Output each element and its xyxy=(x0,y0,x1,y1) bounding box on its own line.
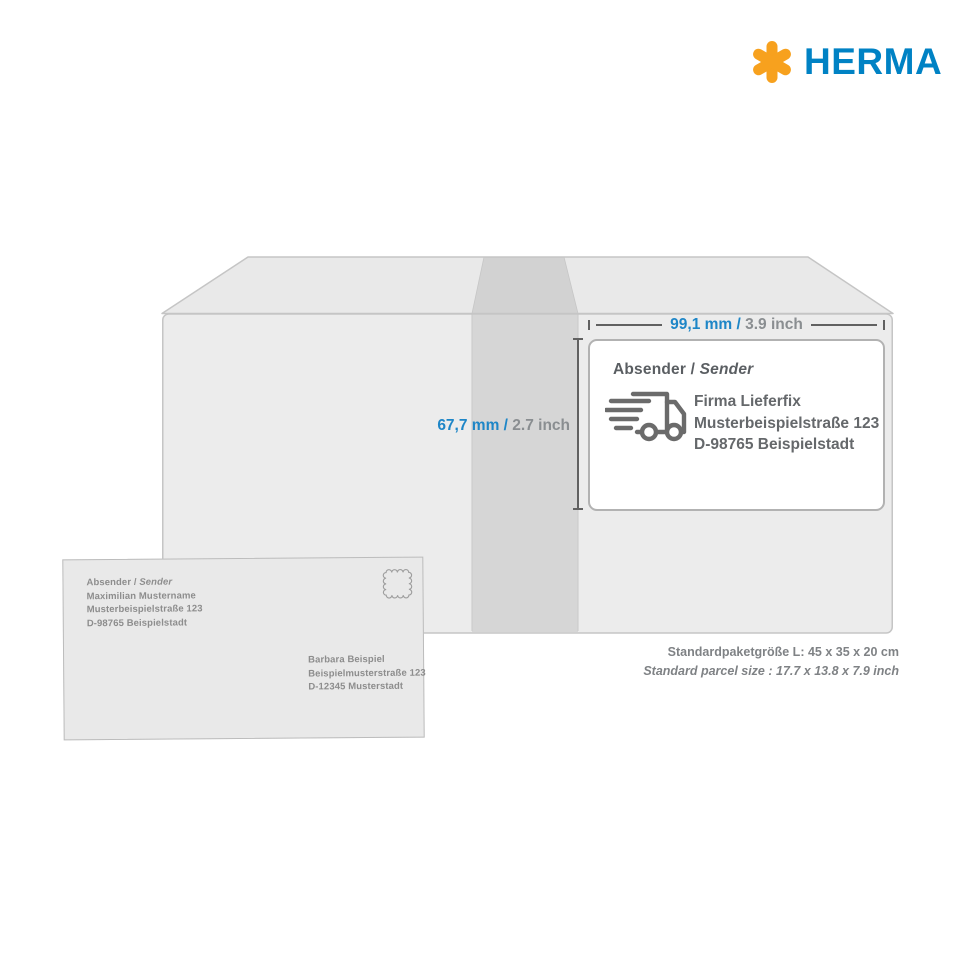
width-metric: 99,1 mm / xyxy=(670,316,741,333)
envelope-recipient-line: D-12345 Musterstadt xyxy=(308,680,426,694)
address-line: D-98765 Beispielstadt xyxy=(694,434,879,456)
width-imperial: 3.9 inch xyxy=(745,316,803,333)
envelope-sender-heading-de: Absender / xyxy=(86,577,136,588)
envelope: Absender / Sender Maximilian Mustername … xyxy=(62,557,424,741)
envelope-sender-heading-en: Sender xyxy=(139,577,172,588)
label-heading-en: Sender xyxy=(700,361,754,378)
width-dimension: 99,1 mm / 3.9 inch xyxy=(588,318,885,332)
dimension-line xyxy=(596,324,662,326)
dimension-tick xyxy=(883,320,885,330)
address-line: Musterbeispielstraße 123 xyxy=(694,413,879,435)
label-heading: Absender / Sender xyxy=(613,361,753,379)
shipping-label: Absender / Sender Firma Lieferfix Muster… xyxy=(588,339,885,511)
height-dimension-text: 67,7 mm / 2.7 inch xyxy=(400,417,570,435)
parcel-size-caption: Standardpaketgröße L: 45 x 35 x 20 cm St… xyxy=(643,643,899,680)
width-dimension-text: 99,1 mm / 3.9 inch xyxy=(668,316,805,334)
caption-imperial: Standard parcel size : 17.7 x 13.8 x 7.9… xyxy=(643,662,899,681)
height-dimension-line xyxy=(577,338,579,510)
herma-wordmark: HERMA xyxy=(804,40,942,84)
envelope-sender-line: Musterbeispielstraße 123 xyxy=(87,602,203,616)
dimension-tick xyxy=(573,338,583,340)
dimension-tick xyxy=(588,320,590,330)
height-metric: 67,7 mm / xyxy=(437,417,508,434)
height-imperial: 2.7 inch xyxy=(512,417,570,434)
envelope-recipient-line: Beispielmusterstraße 123 xyxy=(308,666,426,680)
herma-asterisk-icon xyxy=(750,40,794,84)
delivery-truck-icon xyxy=(605,387,691,445)
envelope-sender-line: D-98765 Beispielstadt xyxy=(87,616,203,630)
dimension-line xyxy=(811,324,877,326)
envelope-recipient-block: Barbara Beispiel Beispielmusterstraße 12… xyxy=(308,653,426,694)
envelope-sender-block: Absender / Sender Maximilian Mustername … xyxy=(86,575,202,630)
herma-logo: HERMA xyxy=(750,40,942,84)
label-heading-de: Absender / xyxy=(613,361,695,378)
label-address-block: Firma Lieferfix Musterbeispielstraße 123… xyxy=(694,391,879,456)
caption-metric: Standardpaketgröße L: 45 x 35 x 20 cm xyxy=(643,643,899,662)
envelope-sender-heading: Absender / Sender xyxy=(86,575,202,589)
envelope-recipient-line: Barbara Beispiel xyxy=(308,653,426,667)
stamp-icon xyxy=(380,567,414,601)
dimension-tick xyxy=(573,508,583,510)
address-line: Firma Lieferfix xyxy=(694,391,879,413)
product-illustration: HERMA 99,1 mm / 3.9 inch 67,7 mm / 2.7 i… xyxy=(0,0,960,960)
envelope-sender-line: Maximilian Mustername xyxy=(87,589,203,603)
